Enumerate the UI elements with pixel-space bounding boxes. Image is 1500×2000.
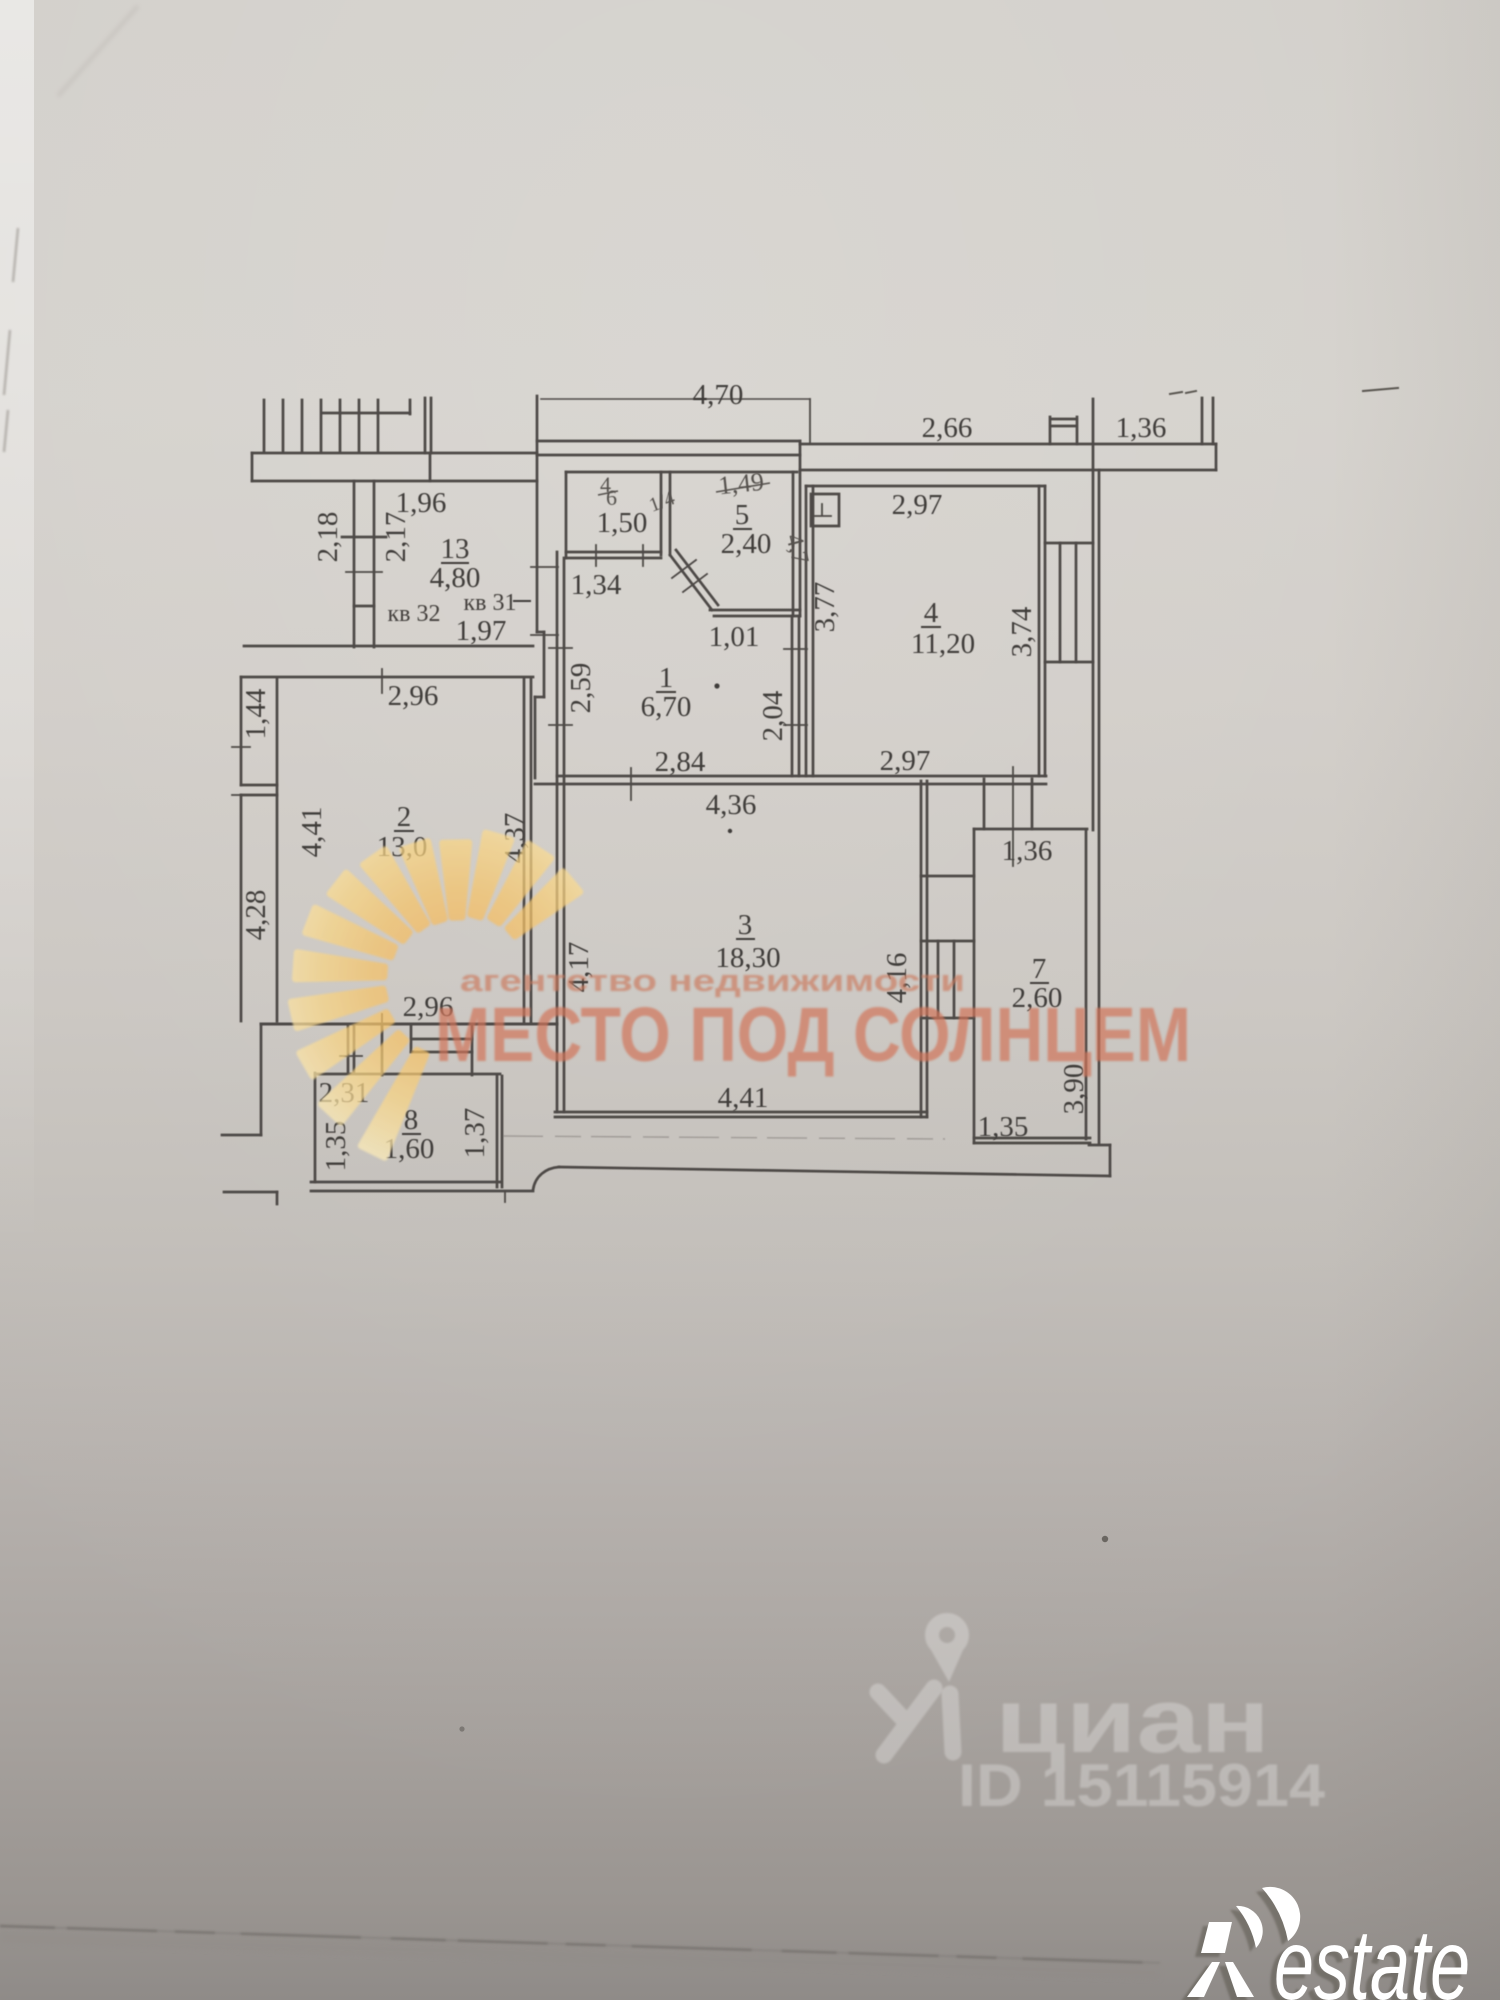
svg-text:1,97: 1,97 [456,615,507,647]
svg-text:1,37: 1,37 [459,1108,491,1159]
svg-text:2,59: 2,59 [565,663,597,714]
svg-text:кв 31: кв 31 [464,590,517,616]
svg-text:2: 2 [397,801,412,833]
svg-text:2,96: 2,96 [388,680,439,712]
svg-text:1: 1 [659,662,674,694]
svg-text:1,35: 1,35 [978,1111,1029,1143]
svg-text:1,49: 1,49 [717,467,765,501]
svg-text:1,01: 1,01 [709,621,760,653]
svg-text:6,70: 6,70 [641,691,692,723]
svg-text:3,77: 3,77 [809,582,841,633]
svg-text:estate: estate [1274,1909,1470,2000]
svg-text:5: 5 [735,499,750,531]
svg-text:2,66: 2,66 [922,412,973,444]
svg-text:1,50: 1,50 [597,507,648,539]
svg-text:2,04: 2,04 [757,690,789,741]
svg-text:1,34: 1,34 [571,569,622,601]
svg-text:ID 15115914: ID 15115914 [958,1752,1326,1819]
svg-text:кв 32: кв 32 [388,601,441,627]
svg-text:1,35: 1,35 [320,1121,352,1172]
svg-text:4,41: 4,41 [296,807,328,858]
svg-text:2,84: 2,84 [655,746,706,778]
svg-text:7: 7 [1032,953,1047,985]
svg-text:3: 3 [738,909,753,941]
svg-text:13: 13 [441,533,470,565]
svg-text:2,17: 2,17 [380,512,412,563]
svg-text:2,97: 2,97 [880,745,931,777]
svg-text:2,97: 2,97 [892,489,943,521]
svg-text:1,44: 1,44 [240,688,272,739]
svg-text:2,18: 2,18 [312,512,344,563]
svg-text:4,28: 4,28 [240,890,272,941]
svg-text:МЕСТО ПОД СОЛНЦЕМ: МЕСТО ПОД СОЛНЦЕМ [435,992,1191,1078]
svg-text:4,41: 4,41 [718,1082,769,1114]
svg-text:3,74: 3,74 [1006,606,1038,657]
svg-text:2,40: 2,40 [721,528,772,560]
svg-text:4,36: 4,36 [706,789,757,821]
svg-text:11,20: 11,20 [911,628,975,660]
svg-text:4,70: 4,70 [693,379,744,411]
svg-text:4: 4 [924,597,939,629]
svg-text:1,36: 1,36 [1002,835,1053,867]
svg-text:1,36: 1,36 [1116,412,1167,444]
